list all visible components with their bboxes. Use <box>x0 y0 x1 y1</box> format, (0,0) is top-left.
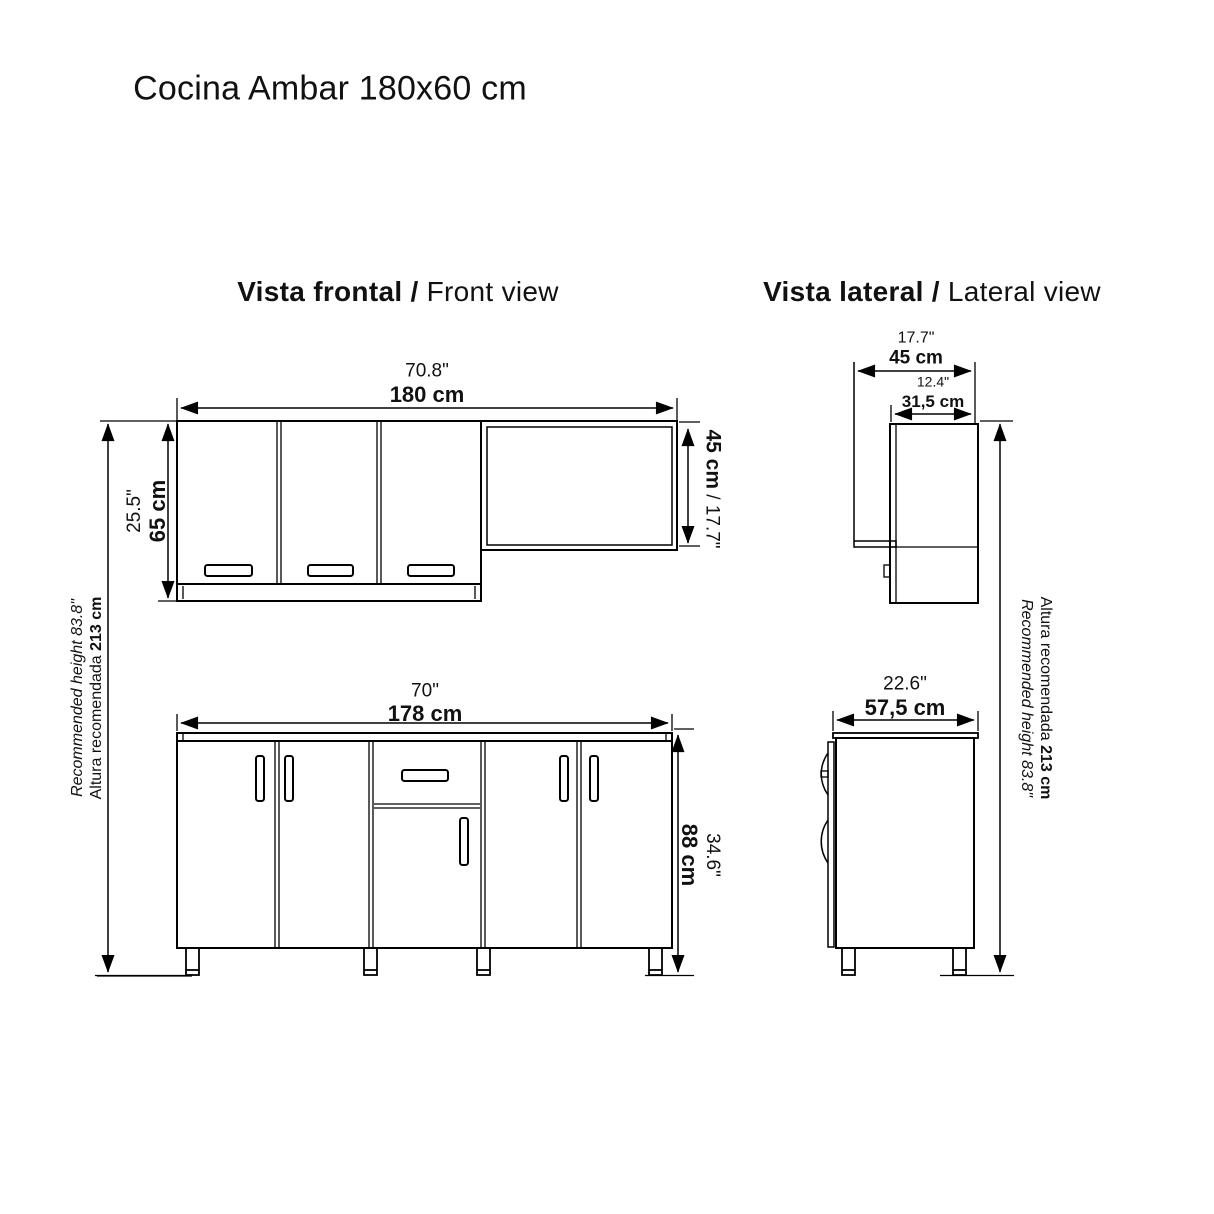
front-view-heading-en: Front view <box>427 276 559 307</box>
page-title: Cocina Ambar 180x60 cm <box>133 71 527 108</box>
lateral-cabinet-depth-cm: 31,5 cm <box>902 393 964 411</box>
recommended-height-right-es: Altura recomendada 213 cm <box>1036 597 1055 800</box>
lateral-cabinet-depth-inches: 12.4" <box>917 374 949 389</box>
recommended-height-right-en: Recommended height 83.8" <box>1017 597 1036 800</box>
front-upper-dimensions <box>97 398 700 976</box>
front-lower-height-cm: 88 cm <box>678 824 702 886</box>
lateral-lower-depth-inches: 22.6" <box>883 675 927 696</box>
front-lower-height-inches: 34.6" <box>702 824 723 886</box>
upper-open-shelf <box>481 421 677 550</box>
lateral-lower-depth-cm: 57,5 cm <box>865 696 946 720</box>
recommended-height-left-en: Recommended height 83.8" <box>68 597 87 800</box>
lower-middle-door-handle <box>460 818 468 865</box>
front-upper-base-strip <box>177 584 481 601</box>
front-view-heading: Vista frontal / Front view <box>237 277 559 307</box>
open-shelf-height-inches: / 17.7" <box>701 489 722 549</box>
front-lower-cabinet-drawing <box>95 733 694 976</box>
open-shelf-height-cm: 45 cm <box>701 429 724 489</box>
front-lower-width-cm: 178 cm <box>388 702 463 726</box>
lateral-upper-dimensions <box>858 362 1013 972</box>
lower-door4-handle <box>560 756 568 801</box>
front-upper-height-cm: 65 cm <box>145 480 169 542</box>
upper-door2-handle <box>308 565 353 576</box>
recommended-height-right-label: Altura recomendada 213 cm Recommended he… <box>1017 597 1055 800</box>
lateral-legs <box>842 948 966 975</box>
lower-door2-handle <box>285 756 293 801</box>
front-lower-dimensions <box>177 714 694 972</box>
recommended-height-left-label: Recommended height 83.8" Altura recomend… <box>68 597 106 800</box>
lateral-total-depth-cm: 45 cm <box>889 349 943 370</box>
front-upper-width-inches: 70.8" <box>405 362 449 383</box>
recommended-height-left-es: Altura recomendada 213 cm <box>87 597 106 800</box>
upper-door1-handle <box>205 565 252 576</box>
lower-door5-handle <box>590 756 598 801</box>
lateral-view-heading-en: Lateral view <box>948 276 1101 307</box>
upper-door3-handle <box>408 565 454 576</box>
lower-door1-handle <box>256 756 264 801</box>
handle-profile-lower <box>821 820 828 863</box>
handle-profile-upper <box>821 753 828 795</box>
lateral-total-depth-inches: 17.7" <box>898 329 935 346</box>
door-front-profile <box>828 742 834 947</box>
front-lower-height-label: 34.6" 88 cm <box>678 824 722 886</box>
lateral-view-heading-es: Vista lateral / <box>763 276 948 307</box>
cabinet-dimension-diagram: Cocina Ambar 180x60 cm Vista frontal / F… <box>0 0 1214 1214</box>
front-view-heading-es: Vista frontal / <box>237 276 426 307</box>
lateral-lower-cabinet-drawing <box>821 733 1014 976</box>
front-legs <box>186 948 662 975</box>
front-lower-width-inches: 70" <box>411 682 439 703</box>
front-upper-cabinet-drawing <box>177 421 677 601</box>
drawer-handle <box>402 770 448 781</box>
countertop-front <box>177 733 672 741</box>
open-shelf-height-label: 45 cm / 17.7" <box>701 429 724 548</box>
lateral-view-heading: Vista lateral / Lateral view <box>763 277 1101 307</box>
front-upper-height-label: 25.5" 65 cm <box>125 480 169 542</box>
front-upper-width-cm: 180 cm <box>390 383 465 407</box>
front-upper-height-inches: 25.5" <box>125 480 146 542</box>
